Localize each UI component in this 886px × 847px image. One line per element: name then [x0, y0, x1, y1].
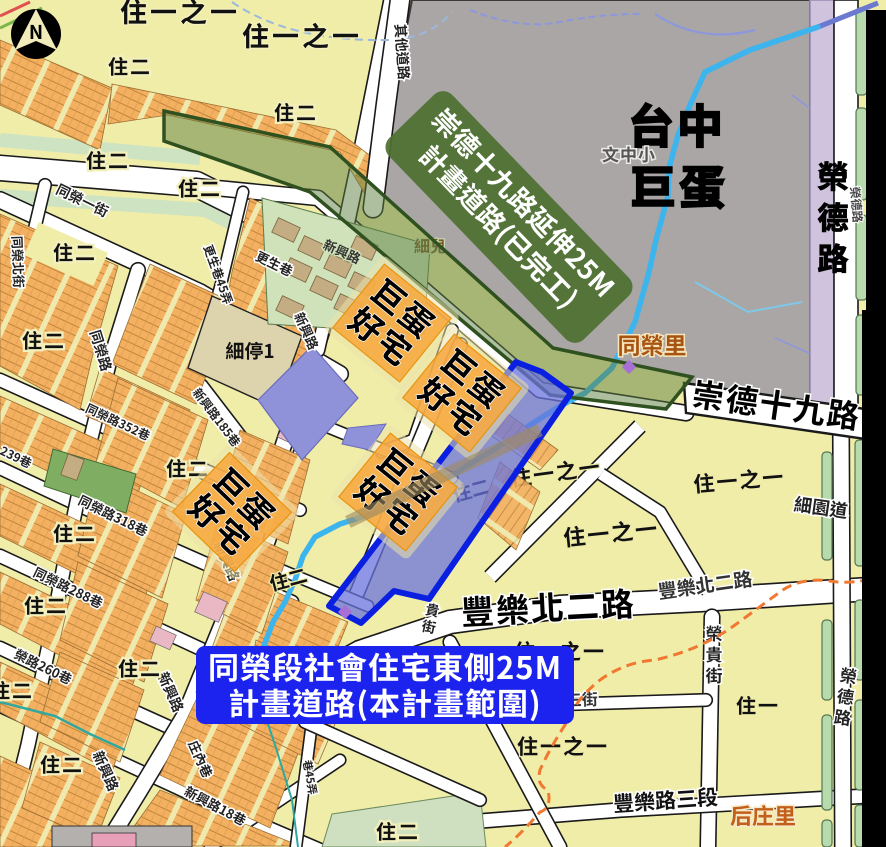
- svg-text:住二: 住二: [376, 816, 420, 845]
- svg-text:住二: 住二: [86, 145, 130, 174]
- svg-text:住二: 住二: [118, 653, 162, 682]
- svg-text:住二: 住二: [40, 749, 84, 778]
- svg-text:其他道路: 其他道路: [390, 23, 414, 80]
- svg-text:住二: 住二: [0, 675, 34, 704]
- svg-text:同榮里: 同榮里: [618, 327, 687, 361]
- svg-text:住二: 住二: [178, 173, 222, 202]
- svg-text:住一之一: 住一之一: [242, 15, 362, 54]
- svg-text:計畫道路(本計畫範圍): 計畫道路(本計畫範圍): [228, 679, 541, 724]
- svg-text:住二: 住二: [24, 590, 68, 619]
- svg-text:細停1: 細停1: [225, 337, 274, 364]
- svg-text:住二: 住二: [22, 325, 66, 354]
- svg-text:文中小: 文中小: [602, 141, 656, 166]
- svg-text:住一之一: 住一之一: [517, 731, 609, 761]
- svg-text:住一: 住一: [736, 690, 780, 719]
- svg-text:榮德路: 榮德路: [846, 186, 866, 223]
- svg-text:住二: 住二: [53, 518, 97, 547]
- svg-text:后庄里: 后庄里: [730, 799, 796, 831]
- svg-text:同榮北街: 同榮北街: [8, 235, 29, 288]
- svg-text:住二: 住二: [274, 97, 318, 126]
- svg-text:住二: 住二: [53, 237, 97, 266]
- svg-text:榮德路: 榮德路: [818, 152, 849, 279]
- svg-text:榮貴街: 榮貴街: [706, 620, 723, 687]
- svg-text:N: N: [29, 18, 43, 45]
- svg-text:豐樂北二路: 豐樂北二路: [460, 577, 637, 634]
- svg-text:住二: 住二: [108, 51, 152, 80]
- svg-text:住一之一: 住一之一: [120, 0, 240, 30]
